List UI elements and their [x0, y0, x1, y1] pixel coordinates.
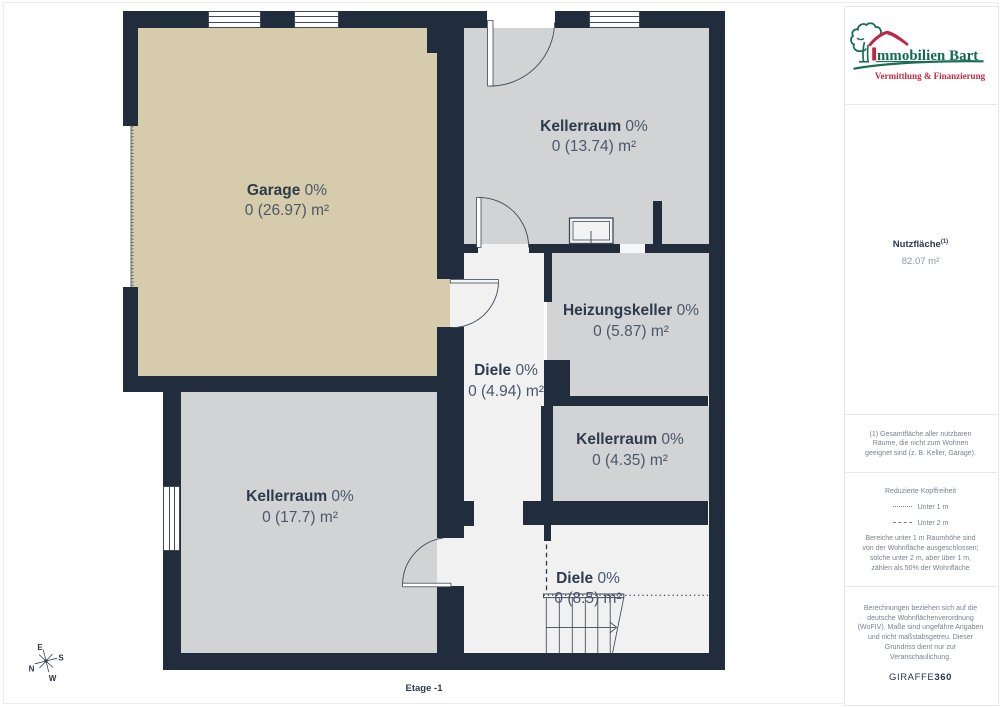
svg-text:W: W [49, 674, 57, 683]
svg-text:E: E [37, 643, 43, 652]
svg-text:S: S [58, 654, 64, 663]
svg-text:N: N [29, 665, 35, 674]
svg-text:Vermittlung & Finanzierung: Vermittlung & Finanzierung [875, 71, 986, 81]
svg-text:mmobilien Bart: mmobilien Bart [877, 48, 978, 64]
